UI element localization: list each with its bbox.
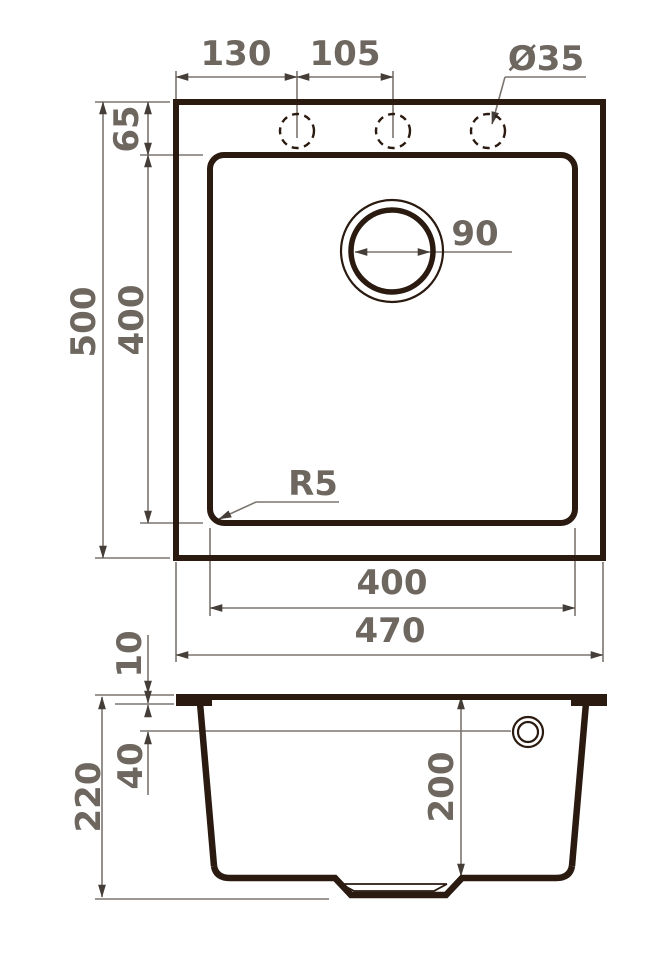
leader-line-radius bbox=[219, 502, 256, 519]
bowl-wall-right bbox=[572, 703, 586, 866]
top-view-extension-lines bbox=[95, 71, 603, 662]
dim-text-500: 500 bbox=[64, 287, 104, 358]
sink-dimension-drawing: 130 105 Ø35 90 R5 400 470 500 400 65 bbox=[0, 0, 669, 959]
bowl-wall-left bbox=[200, 703, 214, 866]
side-view-dimension-lines bbox=[102, 635, 461, 897]
side-view-object bbox=[176, 694, 607, 895]
top-view: 130 105 Ø35 90 R5 400 470 500 400 65 bbox=[64, 34, 603, 662]
side-view: 220 10 40 200 bbox=[69, 630, 607, 899]
sink-rim-top bbox=[176, 694, 607, 700]
sink-rim-lip-left bbox=[176, 700, 212, 706]
faucet-hole-right bbox=[471, 114, 505, 148]
drain-recess-detail bbox=[341, 884, 447, 891]
dim-text-105: 105 bbox=[310, 34, 381, 74]
drain-outer-circle bbox=[341, 200, 443, 302]
overflow-hole-inner bbox=[518, 722, 538, 742]
dim-text-90: 90 bbox=[451, 214, 498, 254]
dim-text-400-bottom: 400 bbox=[357, 563, 428, 603]
dim-text-200: 200 bbox=[422, 752, 462, 823]
dim-text-hole-diameter: Ø35 bbox=[508, 39, 584, 79]
technical-drawing-svg: 130 105 Ø35 90 R5 400 470 500 400 65 bbox=[0, 0, 669, 959]
dim-text-r5: R5 bbox=[288, 464, 338, 504]
dim-text-470: 470 bbox=[355, 611, 426, 651]
top-view-object bbox=[176, 102, 603, 558]
dim-text-40: 40 bbox=[111, 742, 151, 789]
dim-text-220: 220 bbox=[69, 762, 109, 833]
dim-text-130: 130 bbox=[201, 34, 272, 74]
sink-outer-rim bbox=[176, 102, 603, 558]
dim-text-400-left: 400 bbox=[112, 285, 152, 356]
dim-text-65: 65 bbox=[107, 105, 147, 152]
drain-circle bbox=[351, 210, 433, 292]
dim-text-10: 10 bbox=[110, 630, 150, 677]
